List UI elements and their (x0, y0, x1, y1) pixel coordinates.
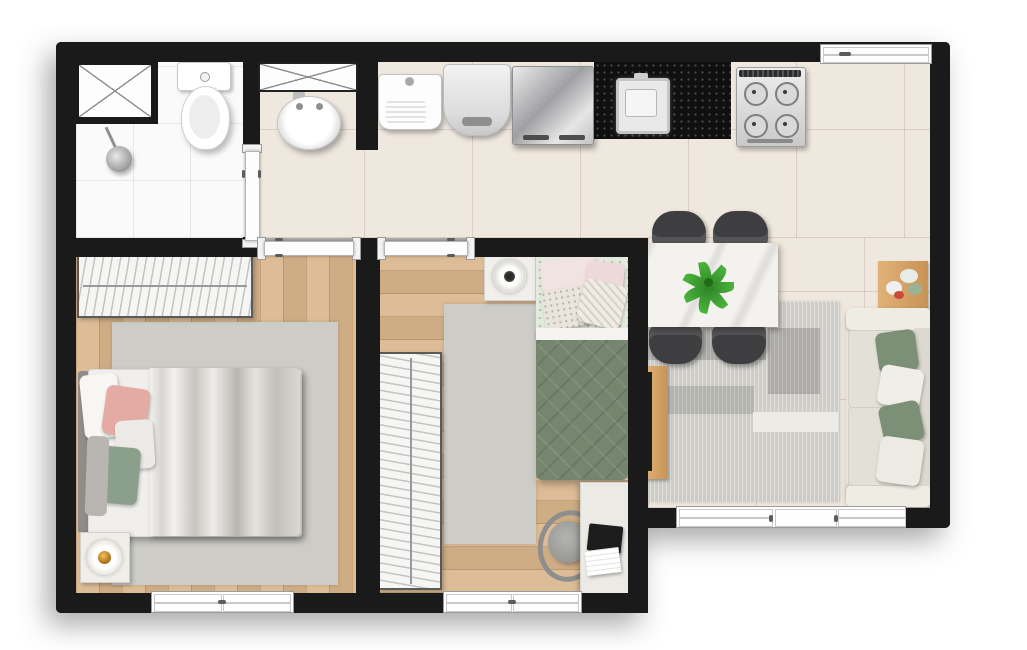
window-pane (154, 603, 222, 612)
flush-button (200, 72, 210, 82)
oven-handle (747, 139, 793, 143)
shower-head-icon (106, 146, 132, 172)
bedroom1-wardrobe (77, 252, 253, 318)
sink-basin (625, 89, 657, 117)
window-pane (223, 603, 291, 612)
wall-bedrooms-top-east (472, 238, 648, 257)
sofa-pillow-white (875, 435, 925, 487)
floor-plan-canvas (0, 0, 1027, 650)
pedestal-sink-icon (277, 96, 341, 150)
wall-top (56, 42, 950, 62)
window-pane (838, 518, 906, 527)
door-handle (447, 238, 455, 241)
washer-slot (462, 117, 492, 126)
wardrobe-rod (83, 285, 247, 287)
ventilation-shaft-box (72, 58, 158, 124)
dining-chair (713, 211, 768, 247)
bedroom1-door (264, 241, 354, 256)
sofa-armrest (846, 308, 931, 330)
kitchen-window (820, 44, 932, 64)
flower (900, 269, 918, 283)
window-handle (508, 600, 516, 604)
rug-patch (666, 386, 754, 414)
bed-throw (85, 436, 110, 517)
window-pane (513, 603, 579, 612)
wall-bedrooms-top-west (56, 238, 262, 257)
stove-icon (736, 67, 806, 147)
bed-duvet (150, 368, 300, 536)
table-plant-icon (690, 265, 738, 307)
window-pane (513, 594, 579, 603)
window-pane (823, 55, 929, 63)
living-sliding-window (676, 506, 906, 528)
stove-controls (739, 70, 801, 77)
tank-ribs (386, 101, 426, 123)
bedroom1-bed (78, 368, 302, 536)
wall-hall-kitchen-stub (356, 42, 378, 150)
dining-chair (712, 325, 766, 364)
desk (580, 482, 630, 594)
window-pane (679, 518, 773, 527)
notebook-paper (585, 547, 622, 576)
door-handle (275, 254, 283, 257)
apartment-plan (0, 0, 1027, 650)
window-pane (154, 594, 222, 603)
bedroom2-door (384, 241, 468, 256)
stove-burner (775, 114, 799, 138)
door-handle (275, 238, 283, 241)
fridge-handle (523, 135, 549, 140)
side-table (878, 261, 928, 308)
door-handle (258, 170, 261, 178)
window-pane (446, 603, 512, 612)
bedroom2-wardrobe (378, 352, 442, 590)
dining-chair (649, 325, 702, 364)
bathroom-door (245, 151, 260, 241)
toilet-bowl (189, 95, 220, 139)
window-handle (834, 515, 838, 522)
bedroom2-nightstand (484, 252, 536, 301)
dining-table (648, 243, 778, 327)
rug-patch (768, 328, 820, 394)
lamp-icon (87, 540, 122, 575)
sink-tap-handle (296, 103, 303, 110)
flower (908, 283, 922, 295)
refrigerator-icon (512, 66, 594, 145)
sink-mixer (634, 73, 648, 79)
window-pane (223, 594, 291, 603)
window-pane (838, 509, 906, 518)
washing-machine-icon (443, 64, 511, 136)
rug-patch-white (753, 412, 838, 432)
wall-between-bedrooms (356, 238, 380, 613)
wall-bathroom-divider-upper (243, 42, 260, 152)
bed-sheet-fold (536, 328, 628, 340)
tv-rack (645, 366, 668, 479)
wall-right (930, 42, 950, 528)
lamp-bulb (98, 551, 111, 564)
wall-left (56, 42, 76, 613)
tank-faucet (405, 77, 414, 86)
lamp-bulb (504, 271, 515, 282)
wall-bedroom2-living (628, 238, 648, 613)
window-handle (839, 52, 851, 56)
lamp-icon (493, 260, 526, 293)
door-handle (242, 170, 245, 178)
window-handle (218, 600, 226, 604)
door-handle (447, 254, 455, 257)
toilet-icon (181, 86, 230, 150)
bed-duvet-green (536, 340, 628, 480)
dining-chair (652, 211, 706, 247)
bedroom2-bed (536, 250, 628, 480)
plant-center (704, 278, 713, 287)
fridge-handle (559, 135, 585, 140)
stove-burner (775, 82, 799, 106)
flower (894, 291, 904, 299)
stove-burner (744, 114, 768, 138)
stove-burner (744, 82, 768, 106)
sink-tap-handle (316, 103, 323, 110)
window-pane (446, 594, 512, 603)
kitchen-sink-icon (616, 78, 670, 134)
window-pane (775, 509, 837, 527)
laundry-tank-icon (378, 74, 442, 130)
bedroom1-window (151, 591, 294, 613)
sofa-armrest (846, 485, 931, 507)
bedroom2-rug (444, 304, 536, 544)
ventilation-shaft-box (258, 62, 358, 92)
sofa (846, 308, 931, 507)
window-pane (679, 509, 773, 518)
window-handle (769, 515, 773, 522)
bedroom2-window (443, 591, 582, 613)
wardrobe-rod (410, 358, 412, 584)
bedroom1-nightstand (80, 532, 130, 583)
